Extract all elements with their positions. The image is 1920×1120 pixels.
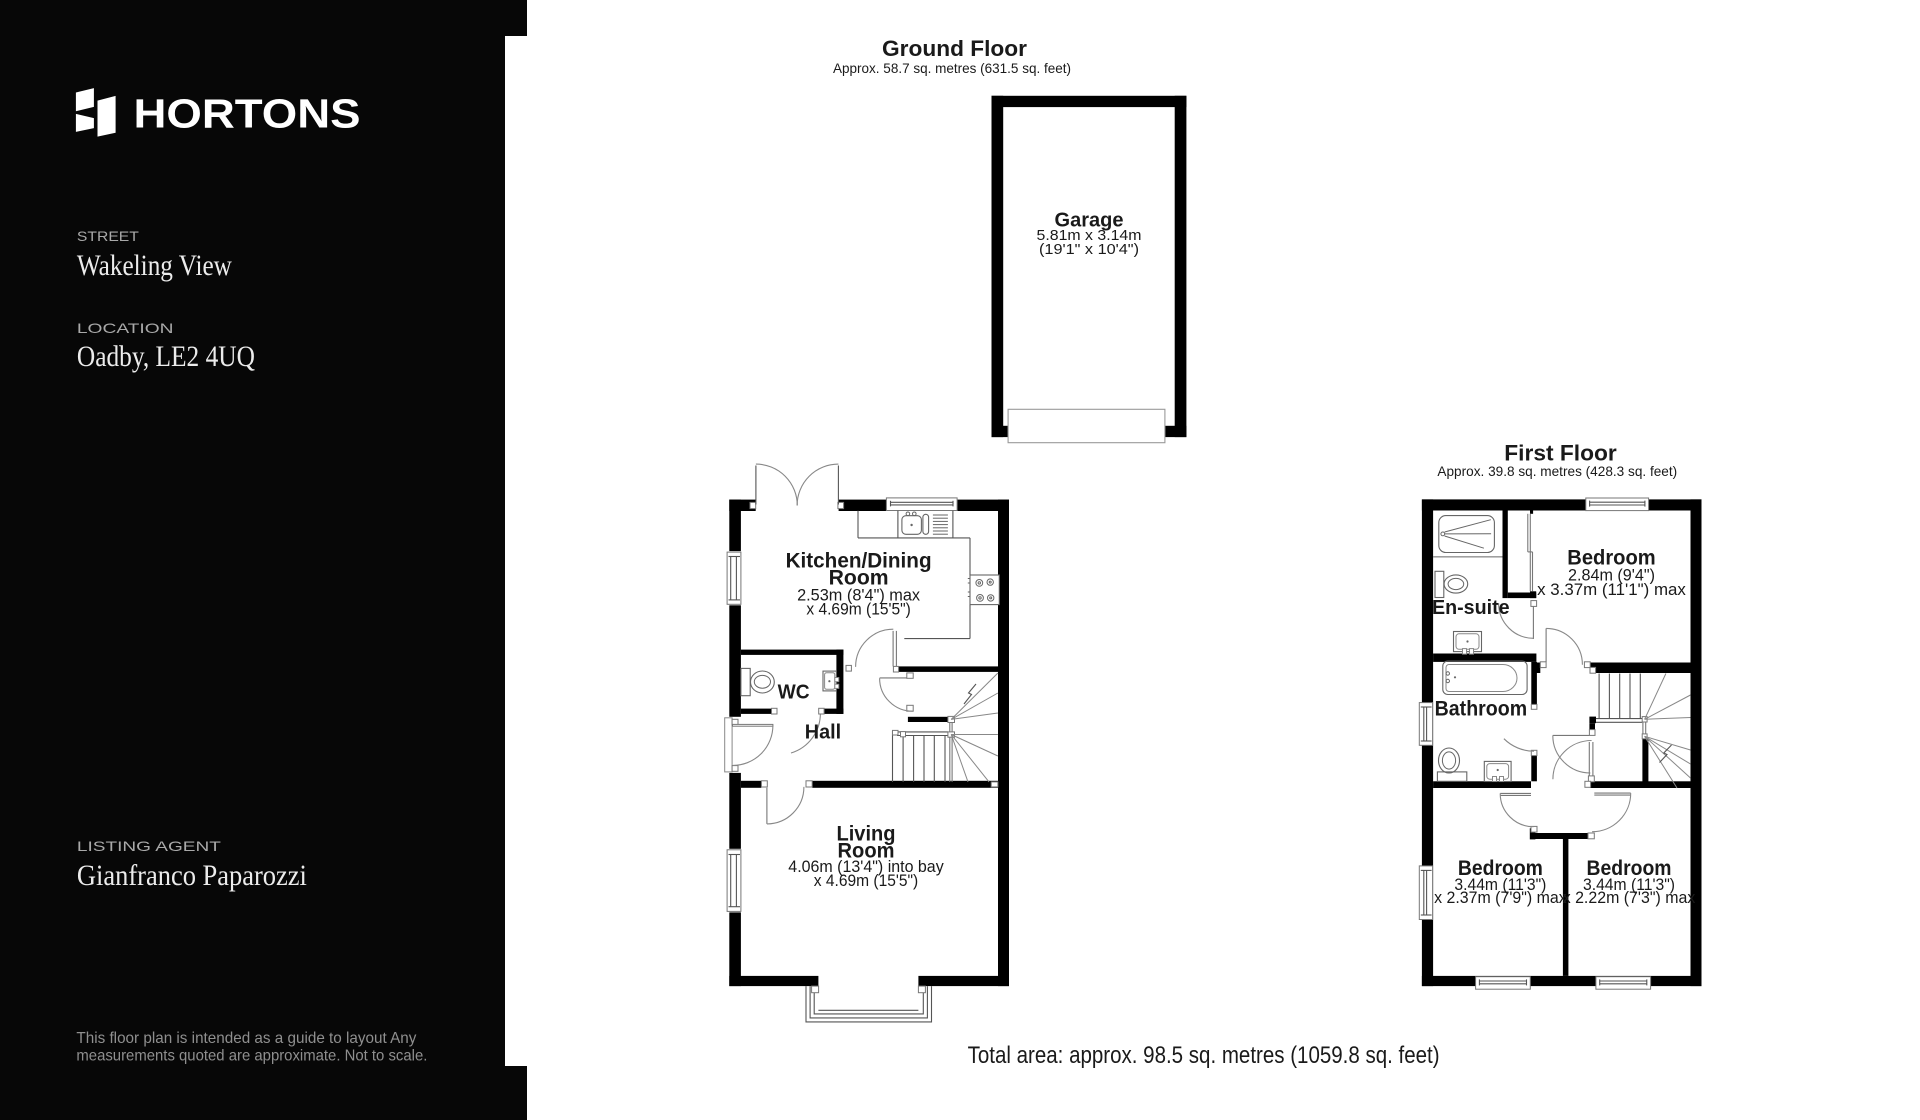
svg-text:Hall: Hall <box>805 722 841 744</box>
svg-text:First Floor: First Floor <box>1504 440 1617 465</box>
svg-text:WC: WC <box>778 681 810 703</box>
svg-text:Approx. 58.7 sq. metres (631.5: Approx. 58.7 sq. metres (631.5 sq. feet) <box>833 60 1071 76</box>
svg-text:LOCATION: LOCATION <box>77 320 174 336</box>
svg-text:HORTONS: HORTONS <box>134 91 361 137</box>
svg-text:x 3.37m (11'1") max: x 3.37m (11'1") max <box>1537 581 1686 599</box>
svg-text:Oadby, LE2 4UQ: Oadby, LE2 4UQ <box>77 340 255 373</box>
svg-text:x 4.69m (15'5"): x 4.69m (15'5") <box>814 872 919 890</box>
svg-text:x 2.22m (7'3") max: x 2.22m (7'3") max <box>1563 889 1696 907</box>
svg-text:Bathroom: Bathroom <box>1435 698 1528 721</box>
svg-text:Approx. 39.8 sq. metres (428.3: Approx. 39.8 sq. metres (428.3 sq. feet) <box>1437 463 1677 479</box>
svg-text:x 4.69m (15'5"): x 4.69m (15'5") <box>806 601 911 619</box>
svg-text:Gianfranco Paparozzi: Gianfranco Paparozzi <box>77 859 307 892</box>
svg-text:(19'1" x 10'4"): (19'1" x 10'4") <box>1039 242 1139 258</box>
svg-text:Wakeling View: Wakeling View <box>77 249 232 282</box>
svg-text:Ground Floor: Ground Floor <box>882 36 1027 61</box>
svg-text:En-suite: En-suite <box>1432 597 1510 619</box>
svg-text:measurements quoted are approx: measurements quoted are approximate. Not… <box>76 1048 427 1065</box>
svg-text:Total area: approx. 98.5 sq. m: Total area: approx. 98.5 sq. metres (105… <box>968 1042 1440 1069</box>
svg-text:STREET: STREET <box>77 228 139 244</box>
svg-text:x 2.37m (7'9") max: x 2.37m (7'9") max <box>1434 889 1567 907</box>
svg-text:This floor plan is intended a: This floor plan is intended as a guide t… <box>76 1030 416 1047</box>
svg-text:LISTING AGENT: LISTING AGENT <box>77 838 222 854</box>
